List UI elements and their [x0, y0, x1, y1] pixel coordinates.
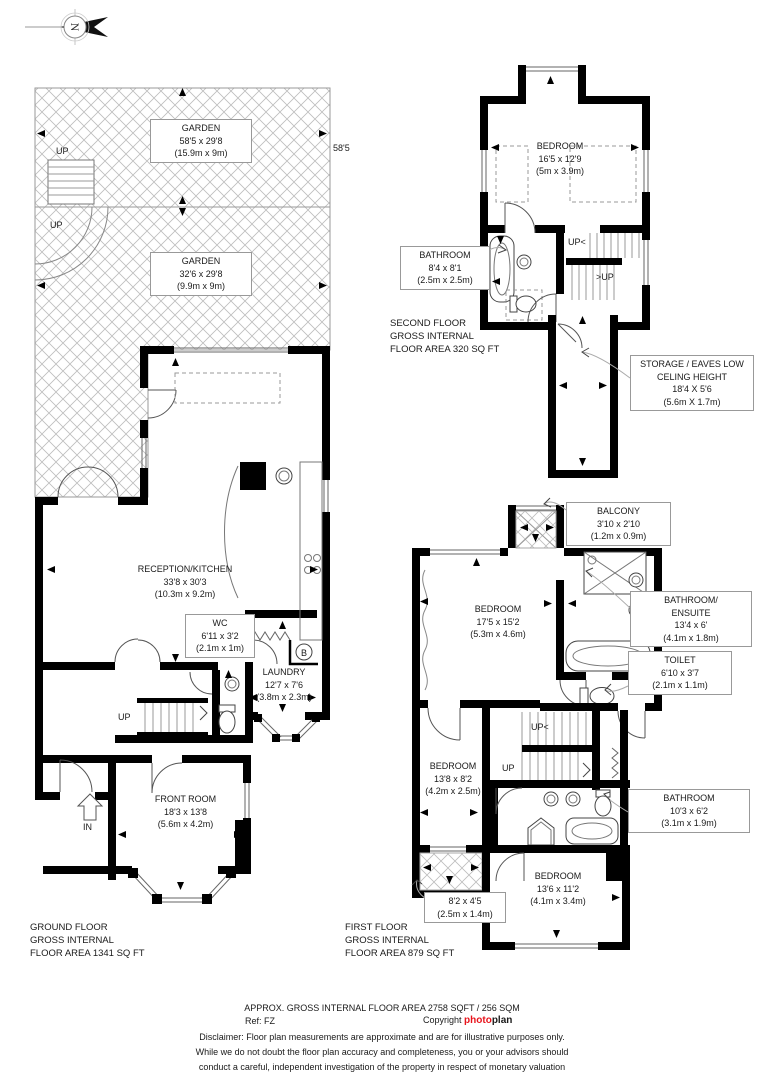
label-roof-terrace: 8'2 x 4'5 (2.5m x 1.4m) — [424, 892, 506, 923]
up-label-first-lower: UP — [502, 763, 515, 773]
room-metric: (4.1m x 1.8m) — [663, 632, 719, 645]
room-metric: (4.1m x 3.4m) — [530, 895, 586, 908]
copyright-line: Copyright photoplan — [423, 1015, 512, 1026]
room-dims: 3'10 x 2'10 — [597, 518, 640, 531]
room-dims: 12'7 x 7'6 — [265, 679, 303, 692]
label-wc: WC 6'11 x 3'2 (2.1m x 1m) — [185, 614, 255, 658]
caption-line: FLOOR AREA 320 SQ FT — [390, 343, 499, 356]
room-metric: (2.5m x 1.4m) — [437, 908, 493, 921]
room-dims: 8'4 x 8'1 — [429, 262, 462, 275]
toilet-icon — [510, 296, 536, 312]
caption-line: FLOOR AREA 879 SQ FT — [345, 947, 454, 960]
room-metric: (2.1m x 1.1m) — [652, 679, 708, 692]
room-metric: (3.1m x 1.9m) — [661, 817, 717, 830]
wc-sink-icon — [225, 677, 239, 691]
caption-line: GROSS INTERNAL — [345, 934, 454, 947]
kitchen-island-icon — [175, 373, 280, 403]
disclaimer-line-2: While we do not doubt the floor plan acc… — [0, 1046, 764, 1058]
room-metric: (5.3m x 4.6m) — [470, 628, 526, 641]
compass-icon: N — [25, 9, 108, 45]
label-reception-kitchen: RECEPTION/KITCHEN 33'8 x 30'3 (10.3m x 9… — [130, 563, 240, 601]
corner-shower-icon — [528, 818, 554, 845]
ground-stairs-icon — [137, 698, 208, 737]
room-metric: (10.3m x 9.2m) — [155, 588, 216, 601]
sink-icon — [544, 792, 580, 806]
toilet-icon — [580, 688, 614, 705]
reference-label: Ref: FZ — [245, 1016, 275, 1026]
garden-stairs-icon — [48, 160, 94, 204]
label-toilet: TOILET 6'10 x 3'7 (2.1m x 1.1m) — [628, 651, 732, 695]
room-name: RECEPTION/KITCHEN — [138, 563, 233, 576]
room-dims: 6'11 x 3'2 — [201, 630, 238, 643]
room-metric: (5m x 3.9m) — [536, 165, 584, 178]
photoplan-logo-plan: plan — [492, 1015, 513, 1026]
room-name: STORAGE / EAVES LOW — [640, 358, 744, 371]
floorplan-page: N — [0, 0, 764, 1080]
room-name: BEDROOM — [430, 760, 477, 773]
room-dims: 13'6 x 11'2 — [537, 883, 579, 896]
label-garden-bottom: GARDEN 32'6 x 29'8 (9.9m x 9m) — [150, 252, 252, 296]
caption-line: FLOOR AREA 1341 SQ FT — [30, 947, 145, 960]
room-metric: (15.9m x 9m) — [174, 147, 227, 160]
sink-icon — [517, 255, 531, 269]
room-dims: 13'8 x 8'2 — [434, 773, 472, 786]
photoplan-logo-photo: photo — [464, 1015, 492, 1026]
room-name: LAUNDRY — [263, 666, 306, 679]
up-label-garden-path: UP — [50, 220, 63, 230]
room-dims: 18'4 X 5'6 — [672, 383, 711, 396]
up-label-second-upper: UP< — [568, 237, 586, 247]
up-label-second-lower: >UP — [596, 272, 614, 282]
room-dims: 33'8 x 30'3 — [164, 576, 207, 589]
room-metric: (2.5m x 2.5m) — [417, 274, 473, 287]
label-laundry: LAUNDRY 12'7 x 7'6 (3.8m x 2.3m) — [247, 666, 321, 704]
bath-icon — [490, 236, 514, 302]
room-metric: (5.6m X 1.7m) — [663, 396, 720, 409]
label-second-bedroom: BEDROOM 16'5 x 12'9 (5m x 3.9m) — [514, 140, 606, 178]
disclaimer-line-3: conduct a careful, independent investiga… — [0, 1061, 764, 1073]
terrace-hatch-area — [420, 853, 482, 890]
entrance-label: IN — [83, 822, 92, 832]
room-metric: (2.1m x 1m) — [196, 642, 244, 655]
caption-line: SECOND FLOOR — [390, 317, 499, 330]
caption-line: GROSS INTERNAL — [390, 330, 499, 343]
total-area-summary: APPROX. GROSS INTERNAL FLOOR AREA 2758 S… — [0, 1002, 764, 1014]
second-floor-graphics — [476, 65, 650, 478]
garden-depth-dimension: 58'5 — [333, 143, 350, 153]
room-name: CELING HEIGHT — [657, 371, 727, 384]
caption-line: GROSS INTERNAL — [30, 934, 145, 947]
room-name: BALCONY — [597, 505, 640, 518]
room-name: BATHROOM — [419, 249, 470, 262]
wc-toilet-icon — [219, 705, 235, 733]
bath-icon — [566, 818, 618, 844]
room-name: WC — [213, 617, 228, 630]
first-floor-caption: FIRST FLOOR GROSS INTERNAL FLOOR AREA 87… — [345, 921, 454, 960]
room-name: BATHROOM/ — [664, 594, 718, 607]
room-name: BEDROOM — [535, 870, 582, 883]
room-metric: (1.2m x 0.9m) — [591, 530, 647, 543]
label-storage-eaves: STORAGE / EAVES LOW CELING HEIGHT 18'4 X… — [630, 355, 754, 411]
room-name: FRONT ROOM — [155, 793, 216, 806]
wardrobe-curve-icon — [423, 570, 428, 690]
room-dims: 18'3 x 13'8 — [164, 806, 207, 819]
room-name: TOILET — [664, 654, 695, 667]
boiler-label: B — [299, 648, 309, 658]
ground-floor-caption: GROUND FLOOR GROSS INTERNAL FLOOR AREA 1… — [30, 921, 145, 960]
room-name: GARDEN — [182, 255, 221, 268]
room-dims: 17'5 x 15'2 — [477, 616, 520, 629]
room-dims: 6'10 x 3'7 — [661, 667, 699, 680]
label-front-room: FRONT ROOM 18'3 x 13'8 (5.6m x 4.2m) — [133, 793, 238, 831]
room-name: BEDROOM — [475, 603, 522, 616]
label-first-bedroom-front: BEDROOM 17'5 x 15'2 (5.3m x 4.6m) — [448, 603, 548, 641]
label-second-bathroom: BATHROOM 8'4 x 8'1 (2.5m x 2.5m) — [400, 246, 490, 290]
caption-line: GROUND FLOOR — [30, 921, 145, 934]
radiator-icon — [612, 748, 618, 778]
room-dims: 58'5 x 29'8 — [180, 135, 223, 148]
ground-floor-graphics — [35, 88, 330, 904]
room-name: GARDEN — [182, 122, 221, 135]
label-first-bedroom-back: BEDROOM 13'6 x 11'2 (4.1m x 3.4m) — [508, 870, 608, 908]
room-dims: 8'2 x 4'5 — [449, 895, 482, 908]
up-label-ground-stairs: UP — [118, 712, 131, 722]
up-label-garden-stairs: UP — [56, 146, 69, 156]
laundry-rack-icon — [250, 632, 290, 640]
room-metric: (5.6m x 4.2m) — [158, 818, 214, 831]
room-metric: (4.2m x 2.5m) — [425, 785, 481, 798]
room-dims: 16'5 x 12'9 — [539, 153, 582, 166]
label-bathroom-ensuite: BATHROOM/ ENSUITE 13'4 x 6' (4.1m x 1.8m… — [630, 591, 752, 647]
compass-letter: N — [68, 23, 82, 32]
second-floor-caption: SECOND FLOOR GROSS INTERNAL FLOOR AREA 3… — [390, 317, 499, 356]
label-garden-top: GARDEN 58'5 x 29'8 (15.9m x 9m) — [150, 119, 252, 163]
room-dims: 32'6 x 29'8 — [180, 268, 223, 281]
room-metric: (9.9m x 9m) — [177, 280, 225, 293]
room-dims: 13'4 x 6' — [675, 619, 708, 632]
room-name: BEDROOM — [537, 140, 584, 153]
copyright-label: Copyright — [423, 1015, 462, 1025]
room-name: ENSUITE — [671, 607, 710, 620]
up-label-first-upper: UP< — [531, 722, 549, 732]
toilet-icon — [595, 790, 611, 816]
disclaimer-line-1: Disclaimer: Floor plan measurements are … — [0, 1031, 764, 1043]
label-balcony: BALCONY 3'10 x 2'10 (1.2m x 0.9m) — [566, 502, 671, 546]
room-dims: 10'3 x 6'2 — [670, 805, 708, 818]
caption-line: FIRST FLOOR — [345, 921, 454, 934]
room-metric: (3.8m x 2.3m) — [256, 691, 312, 704]
room-name: BATHROOM — [663, 792, 714, 805]
label-first-bedroom-middle: BEDROOM 13'8 x 8'2 (4.2m x 2.5m) — [407, 760, 499, 798]
label-first-bathroom: BATHROOM 10'3 x 6'2 (3.1m x 1.9m) — [628, 789, 750, 833]
